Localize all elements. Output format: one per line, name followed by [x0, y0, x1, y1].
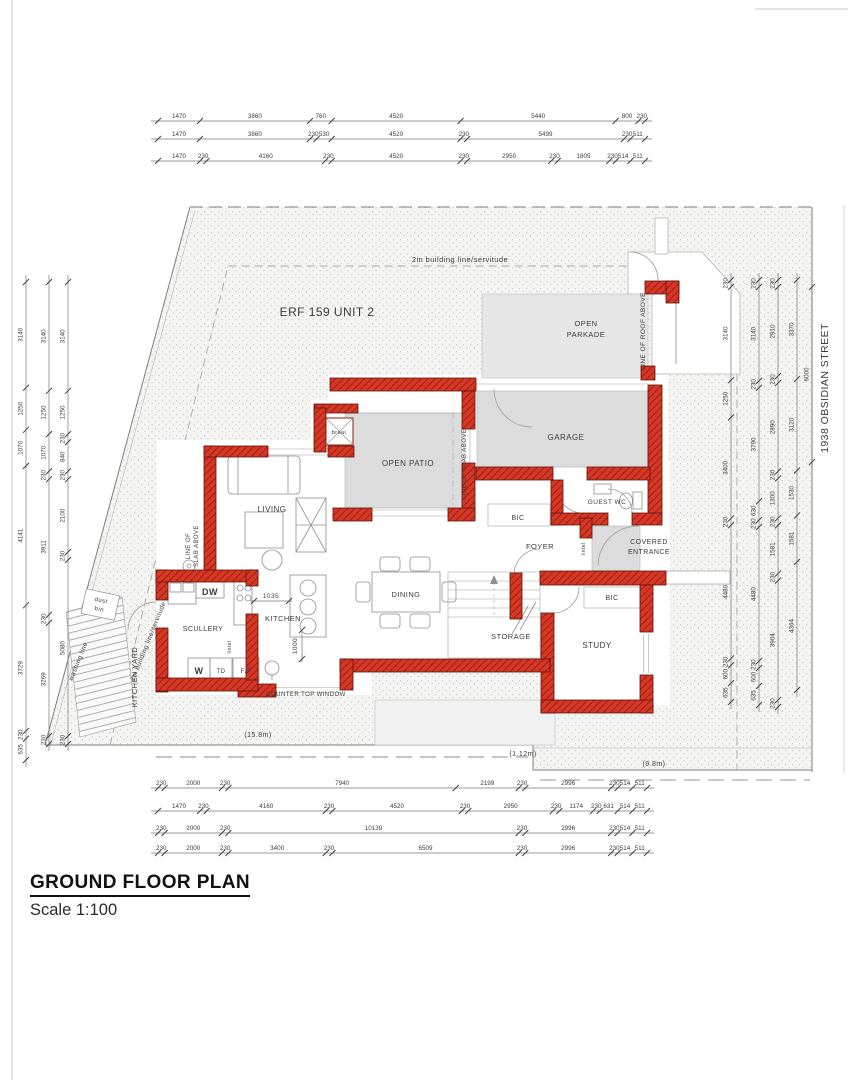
dimension-value: 230	[723, 278, 730, 289]
dimension-value: 511	[635, 825, 646, 832]
dimension-value: 2950	[502, 153, 517, 160]
dimension-value: 2199	[480, 780, 495, 787]
dim-row-bottom-1: 2302000230794021992302996230514511	[151, 780, 654, 791]
dimension-value: 230	[622, 131, 633, 138]
dimension-value: 600	[723, 668, 730, 679]
dimension-value: 3904	[770, 633, 777, 648]
dim-row-top-2: 1470386023053045202305499230511	[151, 131, 652, 142]
dimension-value: 3790	[751, 437, 758, 452]
dimension-value: 530	[319, 131, 330, 138]
walk-right-label: (9.8m)	[643, 761, 666, 768]
dimension-value: 6509	[419, 845, 434, 852]
dimension-value: 230	[220, 780, 231, 787]
dimension-value: 230	[156, 845, 167, 852]
dimension-value: 3120	[789, 417, 796, 432]
dimension-value: 4480	[723, 584, 730, 599]
dimension-value: 230	[198, 153, 209, 160]
parkade-slab	[482, 294, 648, 378]
dimension-value: 3860	[248, 131, 263, 138]
dimension-value: 230	[549, 153, 560, 160]
bic-upper-label: BIC	[511, 515, 524, 522]
dimension-value: 1250	[60, 405, 67, 420]
dimension-value: 6000	[804, 367, 811, 382]
dimension-value: 230	[770, 278, 777, 289]
room-open-parkade-1: OPEN	[574, 319, 597, 328]
dimension-value: 4141	[18, 528, 25, 543]
dimension-value: 4364	[789, 618, 796, 633]
dimension-value: 230	[609, 845, 620, 852]
dimension-value: 511	[635, 803, 646, 810]
dimension-value: 230	[517, 845, 528, 852]
dimension-value: 230	[609, 825, 620, 832]
entrance-screen	[666, 571, 730, 584]
room-foyer: FOYER	[526, 542, 554, 551]
dimension-value: 230	[517, 780, 528, 787]
appliance-dw: DW	[202, 587, 218, 597]
dimension-value: 3370	[789, 322, 796, 337]
dimension-value: 5080	[60, 640, 67, 655]
dimension-value: 230	[220, 825, 231, 832]
dimension-value: 514	[620, 845, 631, 852]
title-block: GROUND FLOOR PLAN Scale 1:100	[30, 872, 250, 920]
line-of-slab-above-2: SLAB ABOVE	[194, 525, 200, 567]
dimension-value: 514	[620, 780, 631, 787]
dimension-value: 7940	[335, 780, 350, 787]
dimension-value: 230	[770, 516, 777, 527]
dimension-value: 3140	[41, 329, 48, 344]
drawing-title: GROUND FLOOR PLAN	[30, 872, 250, 897]
dimension-value: 1530	[789, 486, 796, 501]
counter-top-window-label: COUNTER TOP WINDOW	[266, 692, 345, 698]
dimension-value: 1470	[172, 803, 187, 810]
dimension-value: 230	[723, 656, 730, 667]
dimension-value: 2950	[504, 803, 519, 810]
dimension-value: 5499	[538, 131, 553, 138]
dimension-value: 230	[156, 825, 167, 832]
dimension-value: 230	[591, 803, 602, 810]
dimension-value: 4160	[259, 803, 274, 810]
line-of-slab-above-patio: LINE OF SLAB ABOVE	[462, 429, 468, 499]
dimension-value: 2000	[186, 845, 201, 852]
dimension-value: 635	[723, 687, 730, 698]
dimension-value: 800	[622, 113, 633, 120]
dimension-value: 1174	[569, 803, 583, 810]
dim-row-top-1: 1470386076045205440800230	[151, 113, 652, 124]
dimension-value: 1300	[770, 491, 777, 506]
dimension-value: 230	[220, 845, 231, 852]
dimension-value: 635	[751, 690, 758, 701]
room-open-patio: OPEN PATIO	[382, 459, 434, 468]
dimension-value: 1470	[172, 131, 187, 138]
appliance-ff: F/F	[240, 668, 251, 675]
dimension-value: 514	[618, 153, 629, 160]
dim-col-left-1: 31401250107041413729230635	[18, 275, 30, 767]
dimension-value: 230	[770, 469, 777, 480]
dimension-value: 230	[41, 469, 48, 480]
dimension-value: 1470	[172, 113, 187, 120]
dim-col-left-2: 31401250107023039112303269230	[41, 275, 53, 751]
dimension-value: 230	[751, 379, 758, 390]
dimension-value: 5440	[531, 113, 546, 120]
dimension-value: 4480	[751, 587, 758, 602]
dimension-value: 230	[770, 374, 777, 385]
dimension-value: 3400	[270, 845, 285, 852]
dimension-value: 230	[324, 803, 335, 810]
dimension-value: 635	[18, 744, 25, 755]
drawing-scale: Scale 1:100	[30, 901, 250, 920]
dimension-value: 1250	[18, 401, 25, 416]
dimension-value: 230	[60, 734, 67, 745]
dimension-value: 230	[751, 278, 758, 289]
dimension-value: 1250	[41, 405, 48, 420]
dimension-value: 4160	[259, 153, 274, 160]
walk-mid-label: (1.12m)	[509, 751, 536, 758]
dimension-value: 230	[459, 153, 470, 160]
dimension-value: 2996	[561, 845, 576, 852]
building-line-label-top: 2m building line/servitude	[412, 255, 508, 264]
dimension-value: 1805	[576, 153, 591, 160]
bic-lower-label: BIC	[605, 595, 618, 602]
lintel-scullery: lintel	[227, 641, 233, 654]
lintel-entrance: lintel	[581, 543, 587, 556]
erf-label: ERF 159 UNIT 2	[280, 305, 375, 319]
room-garage: GARAGE	[548, 433, 585, 442]
dimension-value: 514	[620, 803, 631, 810]
dim-row-top-3: 1470230416023045202302950230180523051451…	[151, 153, 652, 164]
line-of-roof-above: LINE OF ROOF ABOVE	[640, 292, 647, 370]
dimension-value: 1070	[41, 445, 48, 460]
room-living: LIVING	[258, 505, 287, 514]
dimension-value: 511	[635, 780, 646, 787]
dimension-value: 230	[308, 131, 319, 138]
dimension-value: 230	[609, 780, 620, 787]
dimension-value: 2000	[186, 780, 201, 787]
line-of-slab-above-1: LINE OF	[186, 533, 192, 560]
dim-1035: 1035	[263, 593, 279, 600]
dimension-value: 230	[41, 613, 48, 624]
room-storage: STORAGE	[491, 632, 531, 641]
dimension-value: 600	[751, 671, 758, 682]
dimension-value: 630	[751, 505, 758, 516]
dimension-value: 3729	[18, 661, 25, 676]
dim-row-bottom-2: 1470230416023045202302950230117423063151…	[151, 803, 654, 814]
dimension-value: 4520	[390, 803, 405, 810]
dimension-value: 4520	[389, 131, 404, 138]
room-open-parkade-2: PARKADE	[567, 330, 605, 339]
room-scullery: SCULLERY	[183, 626, 223, 633]
dimension-value: 3140	[751, 326, 758, 341]
dimension-value: 2000	[186, 825, 201, 832]
dimension-value: 3140	[723, 326, 730, 341]
dimension-value: 230	[60, 432, 67, 443]
room-covered-entrance-1: COVERED	[630, 539, 668, 546]
dimension-value: 230	[324, 845, 335, 852]
dimension-value: 230	[198, 803, 209, 810]
dimension-value: 230	[460, 803, 471, 810]
street-label: 1938 OBSIDIAN STREET	[819, 323, 831, 453]
dimension-value: 230	[751, 659, 758, 670]
dimension-value: 1250	[723, 391, 730, 406]
dimension-value: 3911	[41, 540, 48, 554]
dimension-value: 230	[551, 803, 562, 810]
room-covered-entrance-2: ENTRANCE	[628, 549, 670, 556]
dimension-value: 514	[620, 825, 631, 832]
dimension-value: 3400	[723, 460, 730, 475]
appliance-td: TD	[217, 669, 226, 675]
dimension-value: 230	[60, 550, 67, 561]
dimension-value: 230	[18, 729, 25, 740]
dimension-value: 3860	[248, 113, 263, 120]
walk-left-label: (15.8m)	[244, 732, 271, 739]
dimension-value: 230	[459, 131, 470, 138]
dimension-value: 1581	[789, 531, 796, 546]
dimension-value: 631	[603, 803, 614, 810]
dimension-value: 3140	[60, 329, 67, 344]
dimension-value: 230	[517, 825, 528, 832]
dimension-value: 2996	[561, 780, 576, 787]
dimension-value: 10139	[365, 825, 383, 832]
dimension-value: 2100	[60, 508, 67, 523]
dimension-value: 840	[60, 451, 67, 462]
braai-label: braai	[332, 430, 346, 436]
dimension-value: 230	[323, 153, 334, 160]
dimension-value: 760	[316, 113, 327, 120]
dimension-value: 1470	[172, 153, 187, 160]
dimension-value: 230	[607, 153, 618, 160]
dimension-value: 2996	[561, 825, 576, 832]
dimension-value: 3269	[41, 672, 48, 687]
dimension-value: 230	[723, 516, 730, 527]
room-kitchen: KITCHEN	[265, 614, 301, 623]
dim-1000: 1000	[292, 638, 299, 654]
garage-slab	[477, 391, 648, 467]
dimension-value: 230	[60, 469, 67, 480]
dimension-value: 511	[633, 153, 644, 160]
dimension-value: 230	[156, 780, 167, 787]
room-study: STUDY	[582, 641, 612, 650]
dimension-value: 511	[633, 131, 644, 138]
dimension-value: 1070	[18, 440, 25, 455]
dimension-value: 3140	[18, 327, 25, 342]
dimension-value: 511	[635, 845, 646, 852]
dim-row-bottom-4: 2302000230340023065092302996230514511	[151, 845, 654, 856]
dimension-value: 230	[751, 518, 758, 529]
dimension-value: 230	[636, 113, 647, 120]
paved-area	[375, 700, 555, 745]
dimension-value: 230	[41, 734, 48, 745]
dimension-value: 2910	[770, 324, 777, 339]
room-dining: DINING	[392, 590, 421, 599]
dimension-value: 1581	[770, 542, 777, 557]
room-guest-wc: GUEST WC	[588, 499, 627, 506]
dimension-value: 230	[770, 698, 777, 709]
dimension-value: 4520	[389, 113, 404, 120]
appliance-w: W	[195, 666, 204, 676]
dim-row-bottom-3: 2302000230101392302996230514511	[151, 825, 654, 836]
dimension-value: 230	[770, 571, 777, 582]
dimension-value: 2890	[770, 420, 777, 435]
dimension-value: 4520	[389, 153, 404, 160]
